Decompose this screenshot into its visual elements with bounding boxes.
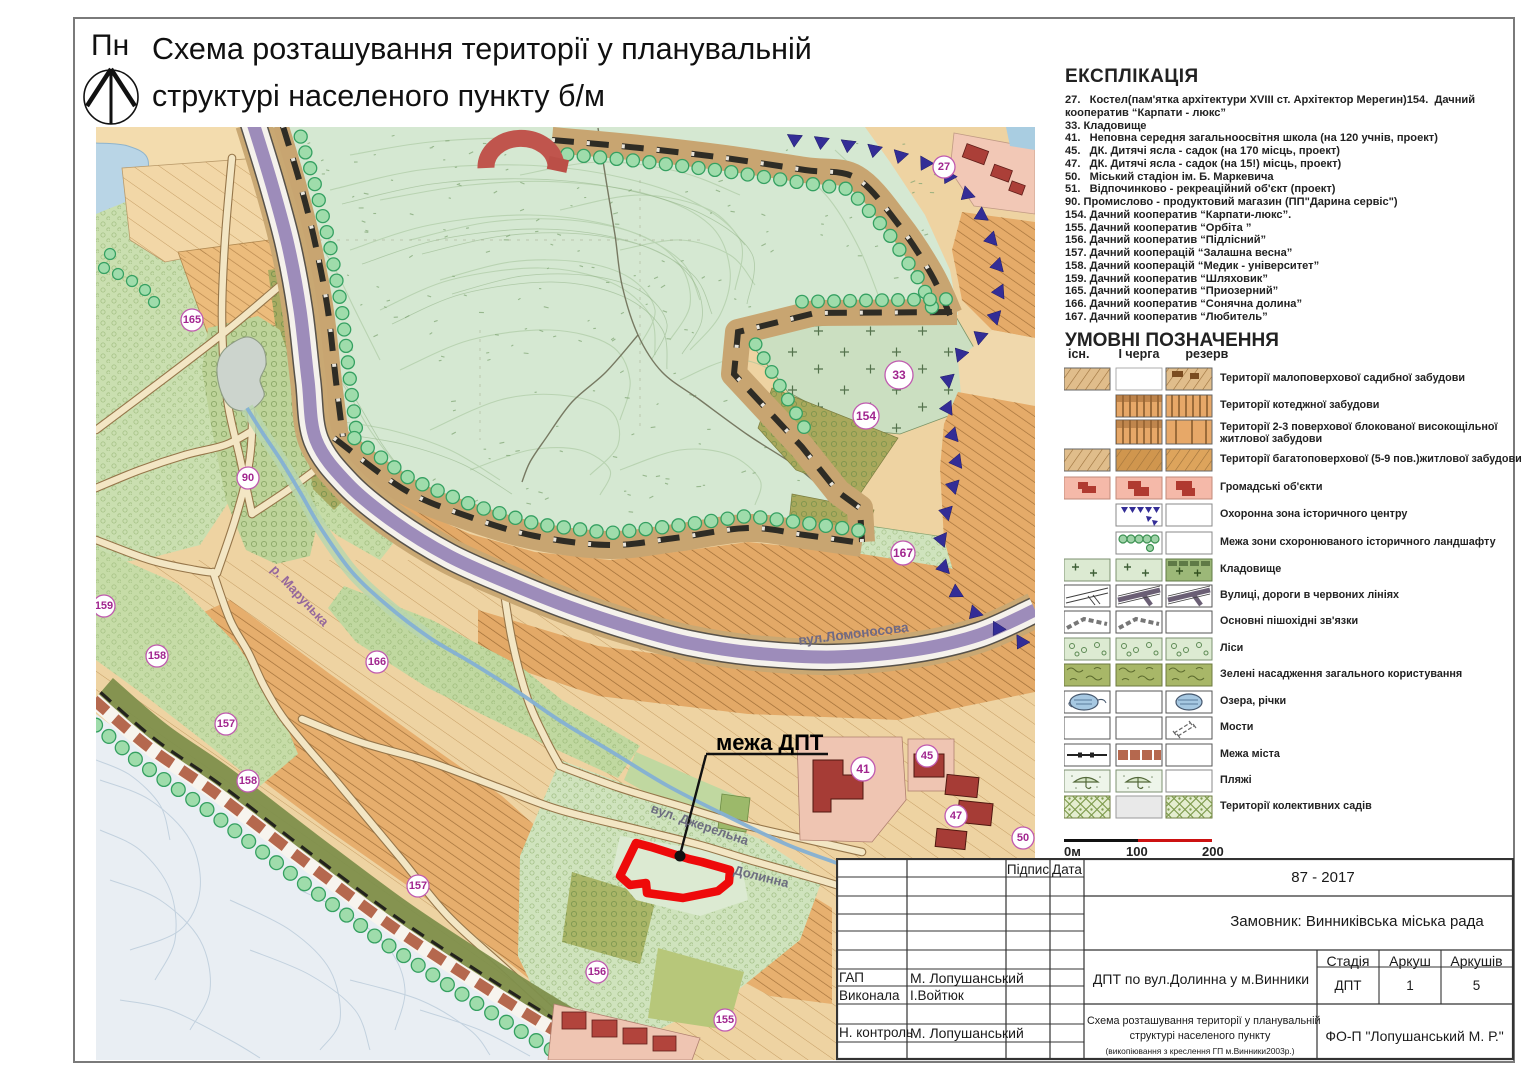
svg-text:33: 33: [892, 368, 906, 382]
svg-text:50: 50: [1017, 832, 1029, 844]
svg-text:167: 167: [893, 546, 913, 560]
svg-text:166: 166: [368, 656, 386, 668]
svg-text:межа ДПТ: межа ДПТ: [716, 730, 824, 755]
svg-text:27: 27: [938, 161, 950, 173]
svg-text:90: 90: [242, 472, 254, 484]
svg-text:100: 100: [1126, 844, 1148, 859]
svg-text:159: 159: [96, 600, 113, 612]
svg-text:155: 155: [716, 1014, 734, 1026]
svg-text:45: 45: [921, 750, 933, 762]
svg-text:154: 154: [856, 409, 876, 423]
svg-text:157: 157: [217, 718, 235, 730]
svg-text:47: 47: [950, 810, 962, 822]
svg-text:200: 200: [1202, 844, 1224, 859]
svg-text:158: 158: [239, 775, 257, 787]
svg-text:165: 165: [183, 314, 201, 326]
svg-text:157: 157: [409, 880, 427, 892]
svg-text:156: 156: [588, 966, 606, 978]
svg-text:158: 158: [148, 650, 166, 662]
svg-text:41: 41: [856, 762, 870, 776]
svg-text:0м: 0м: [1064, 844, 1081, 859]
